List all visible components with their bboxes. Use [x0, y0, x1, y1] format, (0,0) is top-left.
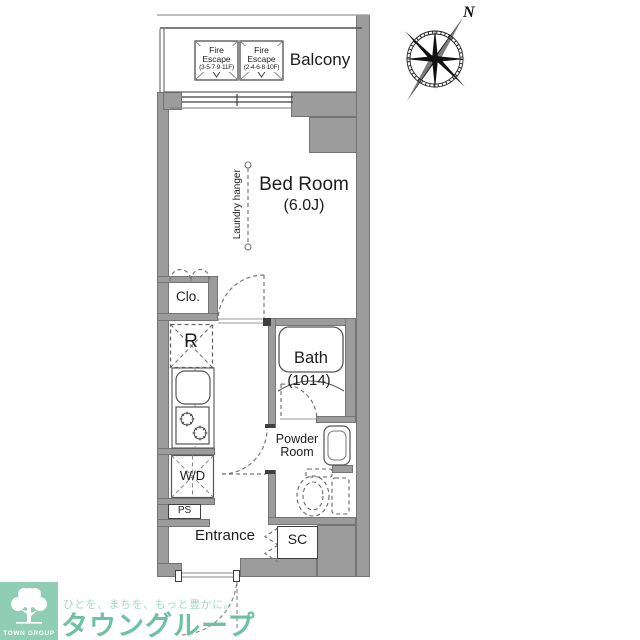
bedroom-door-icon — [218, 275, 271, 326]
window-icon — [182, 94, 293, 106]
kitchen-icon — [172, 368, 214, 448]
bath-label: Bath — [281, 350, 341, 367]
door-post — [175, 570, 182, 582]
brand-company-name: タウングループ — [61, 604, 255, 640]
bathroom-sink-icon — [324, 426, 350, 465]
pipe-space-box: PS — [168, 504, 201, 519]
shoe-closet-label: SC — [281, 532, 314, 547]
floor-plan: PS Balcony Fire Escape (3·5·7·9·11F) Fir… — [0, 0, 640, 640]
bath-door-icon — [280, 384, 317, 420]
toilet-icon — [297, 469, 349, 516]
washer-dryer-label: W/D — [172, 469, 213, 483]
closet-door-icon — [170, 270, 210, 282]
kitchen-sink-icon — [176, 371, 210, 404]
town-group-logo: TOWN GROUP — [0, 582, 58, 640]
laundry-hanger-label: Laundry hanger — [233, 158, 244, 250]
bedroom-size-label: (6.0J) — [258, 198, 350, 215]
fire-escape-label-1: Fire Escape (3·5·7·9·11F) — [198, 46, 235, 72]
refrigerator-label: R — [172, 332, 210, 352]
bedroom-label: Bed Room — [248, 175, 360, 195]
bath-size-label: (1014) — [279, 373, 339, 389]
fire-escape-label-2: Fire Escape (2·4·6·8·10F) — [243, 46, 280, 72]
door-post — [233, 570, 240, 582]
powder-room-label: Powder Room — [270, 433, 324, 459]
pipe-space-label: PS — [169, 506, 200, 517]
tree-icon — [0, 584, 58, 628]
compass-north-label: N — [463, 4, 475, 22]
plan-linework — [0, 0, 640, 640]
logo-text: TOWN GROUP — [0, 630, 58, 637]
balcony-label: Balcony — [284, 51, 356, 69]
powder-door-icon — [222, 424, 275, 474]
closet-label: Clo. — [168, 290, 208, 304]
entrance-label: Entrance — [183, 528, 267, 544]
stove-icon — [176, 407, 209, 444]
balcony-rail-left — [160, 29, 164, 92]
